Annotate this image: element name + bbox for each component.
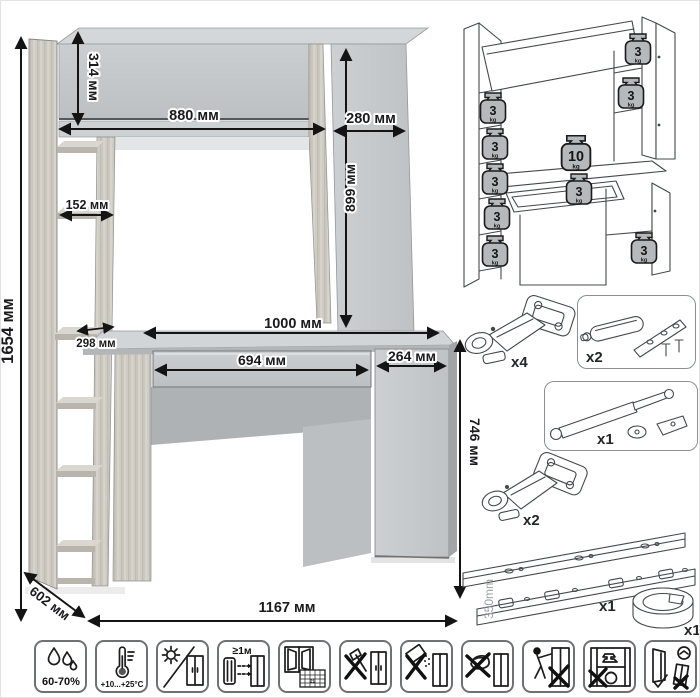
svg-text:60-70%: 60-70% xyxy=(42,676,80,688)
weight-3kg: 3 kg xyxy=(619,78,644,109)
svg-text:kg: kg xyxy=(576,199,582,205)
dim-top-width: 880 мм xyxy=(169,108,219,124)
weight-3kg: 3 kg xyxy=(483,129,508,160)
weight-3kg: 3 kg xyxy=(483,236,508,267)
no-overload-icon xyxy=(583,640,636,693)
svg-text:3: 3 xyxy=(494,210,501,224)
svg-text:3: 3 xyxy=(492,140,499,154)
weight-10kg: 10 kg xyxy=(562,136,591,171)
svg-text:kg: kg xyxy=(490,118,496,124)
svg-text:+10...+25°C: +10...+25°C xyxy=(100,680,143,689)
secure-installation-icon xyxy=(644,640,697,693)
no-sharp-tools-icon xyxy=(339,640,392,693)
desk-left-side xyxy=(113,353,151,581)
svg-text:3: 3 xyxy=(492,175,499,189)
dim-top-depth: 314 мм xyxy=(86,53,102,101)
dim-door-width: 264 мм xyxy=(388,348,436,364)
no-direct-sunlight-icon xyxy=(156,640,209,693)
ventilation-icon: 21 xyxy=(278,640,331,693)
hinge-x4-drawing: x4 xyxy=(453,293,583,377)
top-cabinet-top-face xyxy=(57,28,428,44)
grommet-qty: x1 xyxy=(684,622,700,639)
svg-text:kg: kg xyxy=(492,189,498,195)
svg-text:≥1м: ≥1м xyxy=(232,645,252,657)
dim-shelf-depth: 298 мм xyxy=(76,338,115,350)
no-abrasive-cleaners-icon xyxy=(400,640,453,693)
hinge-x4-qty: x4 xyxy=(511,354,528,371)
furniture-spec-sheet: 1654 мм 314 мм 880 мм 280 мм 899 мм 152 … xyxy=(0,0,700,698)
svg-text:kg: kg xyxy=(628,103,634,109)
svg-text:kg: kg xyxy=(641,258,647,264)
care-icons-strip: 60-70% +10...+25°C xyxy=(34,640,697,693)
svg-text:kg: kg xyxy=(635,59,641,65)
svg-text:kg: kg xyxy=(494,224,500,230)
niche-right-pillar xyxy=(309,44,331,323)
slide-length-label: 350mm xyxy=(482,579,496,619)
svg-text:3: 3 xyxy=(490,104,497,118)
slides-qty: x1 xyxy=(599,598,616,615)
heater-distance-icon: ≥1м xyxy=(217,640,270,693)
weight-3kg: 3 kg xyxy=(483,164,508,195)
gas-lift-drawing: x1 xyxy=(545,382,695,448)
left-side-panel xyxy=(29,39,57,589)
svg-text:kg: kg xyxy=(492,261,498,267)
no-wet-cleaning-icon xyxy=(461,640,514,693)
weight-3kg: 3 kg xyxy=(481,93,506,124)
svg-text:3: 3 xyxy=(576,185,583,199)
svg-text:kg: kg xyxy=(492,154,498,160)
svg-text:kg: kg xyxy=(572,164,580,171)
gas-lift-qty: x1 xyxy=(597,431,614,448)
load-capacity-diagram: 3 kg 3 kg 3 kg 3 kg xyxy=(456,13,700,301)
svg-text:3: 3 xyxy=(492,247,499,261)
svg-text:3: 3 xyxy=(635,45,642,59)
dim-drawer-width: 694 мм xyxy=(238,352,286,368)
dim-niche-height: 899 мм xyxy=(342,164,358,212)
weight-3kg: 3 kg xyxy=(485,199,510,230)
dim-desktop-width: 1000 мм xyxy=(264,316,322,332)
no-dragging-icon xyxy=(522,640,575,693)
dim-shelf-width: 152 мм xyxy=(66,198,109,212)
humidity-icon: 60-70% xyxy=(34,640,87,693)
svg-text:21: 21 xyxy=(309,678,315,683)
gas-lift-box: x1 xyxy=(544,381,698,451)
dim-total-height: 1654 мм xyxy=(1,298,17,364)
damper-qty: x2 xyxy=(586,349,603,366)
door-damper-box: x2 xyxy=(577,295,696,369)
dim-side-width: 280 мм xyxy=(346,111,396,127)
svg-text:3: 3 xyxy=(641,244,648,258)
cable-grommet-drawing: x1 xyxy=(626,579,700,639)
temperature-icon: +10...+25°C xyxy=(95,640,148,693)
dim-total-width: 1167 мм xyxy=(259,600,316,616)
desk xyxy=(83,331,457,581)
furniture-drawing: 1654 мм 314 мм 880 мм 280 мм 899 мм 152 … xyxy=(1,1,481,641)
cabinet-door xyxy=(375,349,449,557)
svg-text:3: 3 xyxy=(628,89,635,103)
door-damper-drawing: x2 xyxy=(578,296,693,366)
